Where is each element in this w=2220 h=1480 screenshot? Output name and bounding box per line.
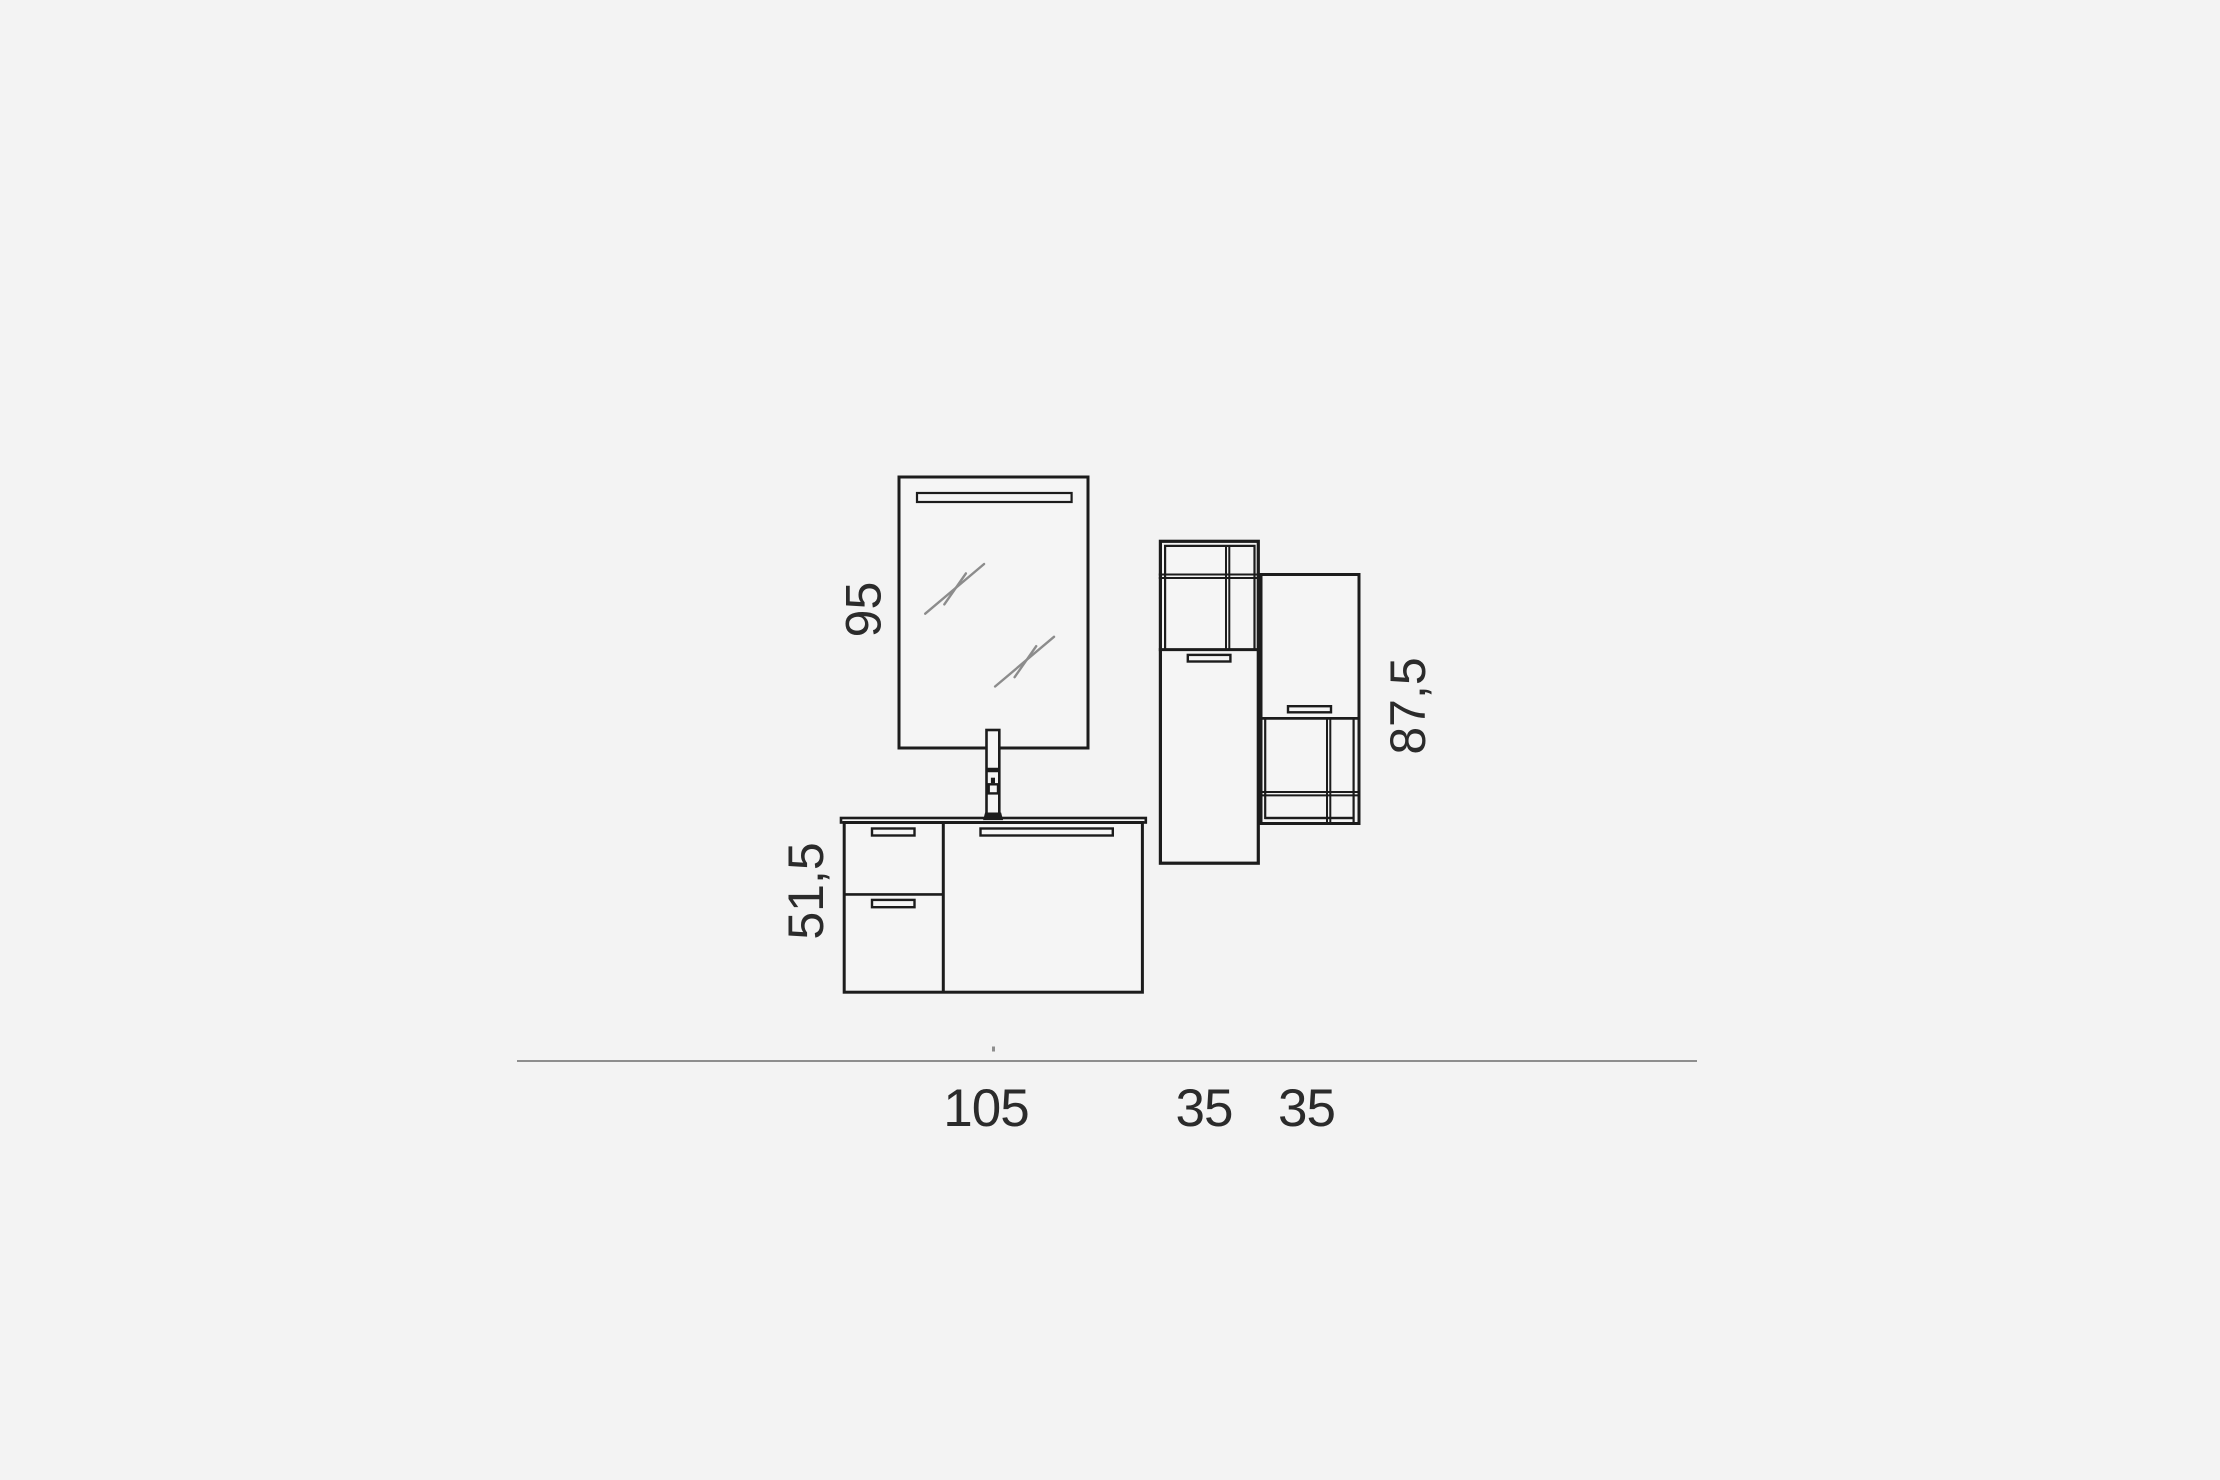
svg-text:51,5: 51,5	[778, 842, 834, 939]
svg-text:35: 35	[1176, 1079, 1233, 1138]
svg-text:35: 35	[1278, 1079, 1335, 1138]
svg-text:95: 95	[836, 582, 892, 638]
svg-text:105: 105	[943, 1079, 1028, 1138]
svg-text:87,5: 87,5	[1380, 657, 1436, 754]
